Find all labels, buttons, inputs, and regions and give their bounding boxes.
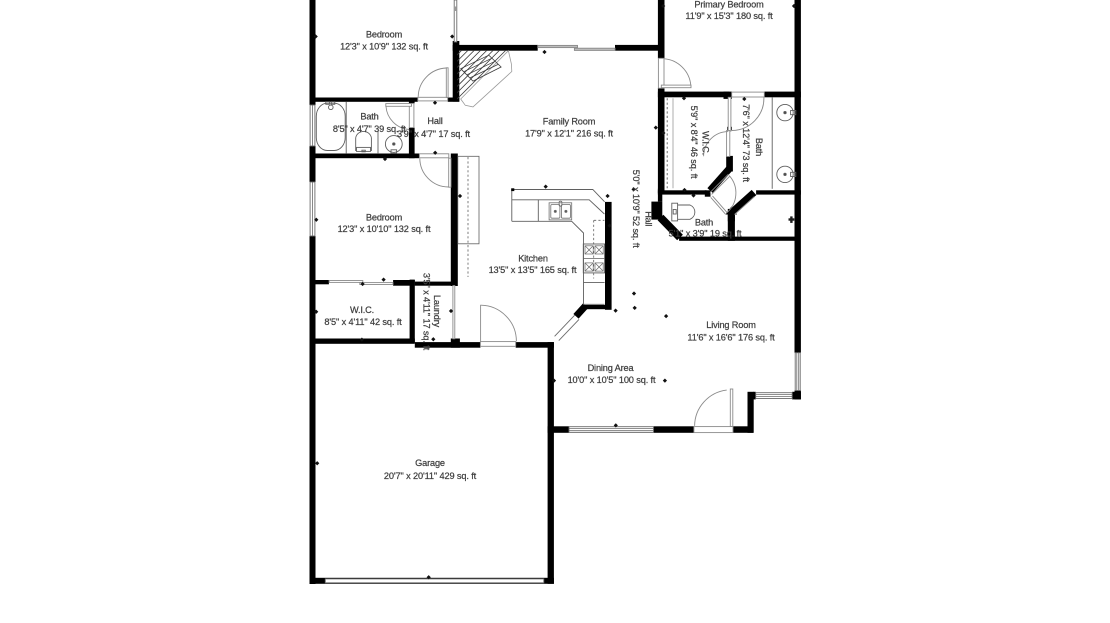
svg-text:Kitchen: Kitchen [518, 254, 548, 264]
svg-text:8'5" x 4'11" 42 sq. ft: 8'5" x 4'11" 42 sq. ft [324, 317, 402, 327]
svg-text:5'0" x 10'9" 52 sq. ft: 5'0" x 10'9" 52 sq. ft [631, 170, 641, 248]
svg-text:12'3" x 10'9" 132 sq. ft: 12'3" x 10'9" 132 sq. ft [340, 42, 428, 52]
svg-text:3'9" x 4'7" 17 sq. ft: 3'9" x 4'7" 17 sq. ft [397, 129, 470, 139]
svg-text:10'0" x 10'5" 100 sq. ft: 10'0" x 10'5" 100 sq. ft [568, 375, 656, 385]
svg-text:5'1" x 3'9" 19 sq. ft: 5'1" x 3'9" 19 sq. ft [669, 229, 742, 239]
svg-text:11'6" x 16'6" 176 sq. ft: 11'6" x 16'6" 176 sq. ft [687, 333, 775, 343]
svg-text:13'5" x 13'5" 165 sq. ft: 13'5" x 13'5" 165 sq. ft [489, 265, 577, 275]
svg-text:Family Room: Family Room [543, 117, 596, 127]
svg-text:Bedroom: Bedroom [366, 30, 403, 40]
svg-text:Dining Area: Dining Area [588, 363, 635, 373]
svg-text:3'5" x 4'11" 17 sq. ft: 3'5" x 4'11" 17 sq. ft [422, 273, 432, 351]
svg-text:7'6" x 12'4" 73 sq. ft: 7'6" x 12'4" 73 sq. ft [741, 104, 751, 182]
svg-text:8'5" x 4'7" 39 sq. ft: 8'5" x 4'7" 39 sq. ft [333, 124, 406, 134]
svg-text:Hall: Hall [643, 211, 653, 226]
svg-text:Bedroom: Bedroom [366, 213, 403, 223]
svg-text:Primary Bedroom: Primary Bedroom [694, 0, 764, 10]
svg-text:Laundry: Laundry [432, 295, 442, 328]
svg-text:Bath: Bath [754, 138, 764, 156]
svg-text:Living Room: Living Room [706, 320, 756, 330]
svg-text:Hall: Hall [427, 116, 442, 126]
svg-text:5'9" x 8'4" 46 sq. ft: 5'9" x 8'4" 46 sq. ft [689, 106, 699, 179]
svg-text:W.I.C.: W.I.C. [350, 305, 374, 315]
svg-text:Bath: Bath [695, 218, 713, 228]
svg-text:Bath: Bath [360, 112, 378, 122]
svg-text:20'7" x 20'11" 429 sq. ft: 20'7" x 20'11" 429 sq. ft [384, 471, 477, 481]
svg-text:Garage: Garage [415, 458, 445, 468]
svg-text:17'9" x 12'1" 216 sq. ft: 17'9" x 12'1" 216 sq. ft [525, 129, 613, 139]
svg-text:12'3" x 10'10" 132 sq. ft: 12'3" x 10'10" 132 sq. ft [338, 224, 431, 234]
svg-text:11'9" x 15'3" 180 sq. ft: 11'9" x 15'3" 180 sq. ft [685, 11, 773, 21]
svg-text:W.I.C.: W.I.C. [701, 131, 711, 155]
